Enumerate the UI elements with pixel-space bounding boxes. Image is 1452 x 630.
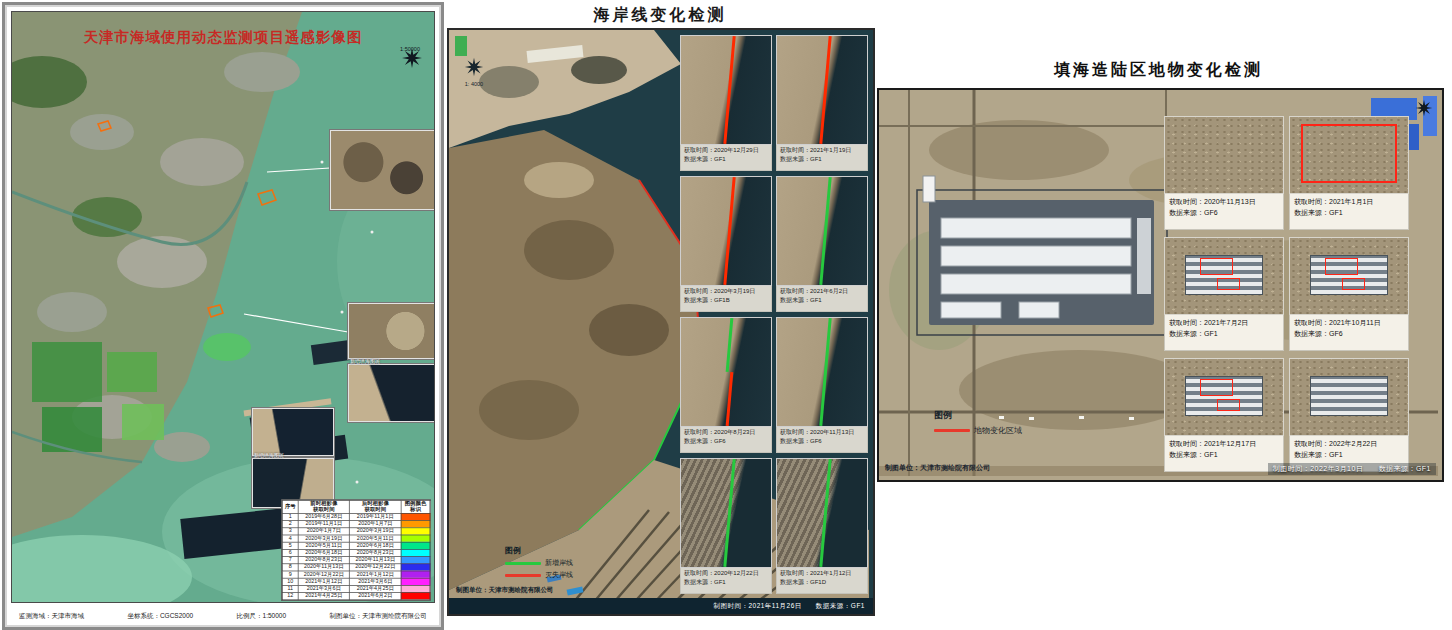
change-area-outline — [1342, 278, 1365, 291]
left-inset-b1 — [348, 303, 435, 359]
inset-satellite-image — [680, 176, 772, 286]
legend-row: 102021年1月12日2021年3月6日 — [282, 577, 430, 584]
inset-caption: 获取时间：2021年10月11日数据来源：GF6 — [1289, 315, 1409, 351]
inset-caption: 获取时间：2021年12月17日数据来源：GF1 — [1164, 436, 1284, 472]
compass-icon — [463, 56, 485, 78]
acquired-line: 获取时间：2020年3月19日 — [684, 287, 768, 296]
inset-satellite-image — [680, 35, 772, 145]
legend-cell: 2019年11月1日 — [350, 513, 401, 520]
inset-satellite-image — [776, 317, 868, 427]
acquired-line: 获取时间：2020年11月13日 — [780, 428, 864, 437]
acquired-line: 获取时间：2021年6月2日 — [780, 287, 864, 296]
change-area-outline — [1325, 258, 1358, 275]
acquired-label: 获取时间： — [1294, 440, 1329, 447]
left-inset-label-2: 新增填海图斑 — [254, 452, 284, 459]
reclamation-footer: 制图时间：2022年3月10日 数据来源：GF1 — [1268, 463, 1436, 475]
source-value: GF1 — [810, 156, 822, 162]
reclamation-inset: 获取时间：2021年1月1日数据来源：GF1 — [1289, 116, 1409, 230]
legend-cell: 2020年3月19日 — [350, 527, 401, 534]
source-line: 数据来源：GF1 — [780, 296, 864, 305]
coastline-inset-grid: 获取时间：2020年12月29日数据来源：GF1获取时间：2021年1月19日数… — [680, 35, 868, 594]
source-value: GF1 — [714, 579, 726, 585]
acquired-label: 获取时间： — [1294, 198, 1329, 205]
inset-caption: 获取时间：2021年1月19日数据来源：GF1 — [776, 145, 868, 171]
source-value: GF1B — [714, 297, 730, 303]
source-line: 数据来源：GF6 — [1169, 207, 1279, 218]
change-area-line — [934, 429, 970, 432]
reclamation-legend: 图例 地物变化区域 — [934, 409, 1022, 436]
acquired-label: 获取时间： — [780, 429, 810, 435]
coastline-inset: 获取时间：2020年11月13日数据来源：GF6 — [776, 317, 868, 453]
legend-color-swatch — [401, 570, 430, 577]
acquired-line: 获取时间：2021年10月11日 — [1294, 317, 1404, 328]
acquired-value: 2020年8月23日 — [714, 429, 755, 435]
left-compass: 1:50000 — [400, 46, 420, 53]
legend-color-swatch — [401, 549, 430, 556]
source-label: 数据来源： — [780, 156, 810, 162]
source-label: 数据来源： — [1294, 209, 1329, 216]
acquired-line: 获取时间：2020年8月23日 — [684, 428, 768, 437]
footer-scale: 比例尺：1:50000 — [237, 612, 287, 621]
legend-label: 地物变化区域 — [974, 425, 1022, 436]
legend-label: 新增岸线 — [545, 558, 573, 568]
coastline-overlay-line — [819, 459, 831, 567]
left-inset-b2 — [348, 364, 435, 422]
source-line: 数据来源：GF1 — [1169, 328, 1279, 339]
acquired-line: 获取时间：2020年11月13日 — [1169, 196, 1279, 207]
inset-satellite-image — [1289, 237, 1409, 315]
acquired-value: 2021年6月2日 — [810, 288, 848, 294]
inset-satellite-image — [680, 317, 772, 427]
left-map-title: 天津市海域使用动态监测项目遥感影像图 — [12, 28, 434, 47]
legend-cell: 12 — [282, 592, 298, 599]
source-label: 数据来源： — [1169, 209, 1204, 216]
inset-caption: 获取时间：2021年7月2日数据来源：GF1 — [1164, 315, 1284, 351]
new-coastline-line — [505, 562, 541, 565]
legend-cell: 1 — [282, 513, 298, 520]
inset-satellite-image — [680, 458, 772, 568]
source-line: 数据来源：GF1 — [1294, 207, 1404, 218]
coastline-overlay-line — [725, 372, 732, 426]
acquired-value: 2020年11月13日 — [810, 429, 854, 435]
legend-title: 图例 — [505, 545, 573, 556]
source-label: 数据来源： — [1294, 330, 1329, 337]
legend-row: 122021年4月25日2021年6月2日 — [282, 592, 430, 599]
acquired-value: 2021年10月11日 — [1329, 319, 1381, 326]
right-compass — [1414, 98, 1434, 121]
legend-cell: 7 — [282, 556, 298, 563]
source-label: 数据来源： — [1169, 451, 1204, 458]
legend-color-swatch — [401, 541, 430, 548]
acquired-line: 获取时间：2021年7月2日 — [1169, 317, 1279, 328]
inset-satellite-image — [1164, 116, 1284, 194]
inset-caption: 获取时间：2021年1月12日数据来源：GF1D — [776, 568, 868, 594]
inset-satellite-image — [1289, 116, 1409, 194]
footer-coords: 坐标系统：CGCS2000 — [127, 612, 193, 621]
legend-cell: 2019年6月28日 — [298, 513, 349, 520]
source-label: 数据来源： — [684, 579, 714, 585]
legend-cell: 4 — [282, 534, 298, 541]
coastline-panel: 海岸线变化检测 — [444, 0, 876, 630]
legend-color-swatch — [401, 527, 430, 534]
middle-compass: 1: 4000 — [463, 56, 485, 88]
legend-col-header: 序号 — [282, 500, 298, 513]
source-value: GF6 — [714, 438, 726, 444]
legend-title: 图例 — [934, 409, 1022, 422]
acquired-label: 获取时间： — [780, 570, 810, 576]
coastline-footer-text: 制图时间：2021年11月26日 数据来源：GF1 — [713, 602, 865, 611]
legend-item-new: 新增岸线 — [505, 558, 573, 568]
legend-row: 12019年6月28日2019年11月1日 — [282, 513, 430, 520]
reclamation-inset: 获取时间：2022年2月22日数据来源：GF1 — [1289, 358, 1409, 472]
middle-scale-label: 1: 4000 — [463, 82, 485, 88]
source-value: GF6 — [810, 438, 822, 444]
legend-cell: 2021年6月2日 — [350, 592, 401, 599]
acquired-value: 2021年12月17日 — [1204, 440, 1256, 447]
acquired-value: 2020年11月13日 — [1204, 198, 1256, 205]
source-value: GF1 — [1204, 451, 1218, 458]
acquired-line: 获取时间：2021年12月17日 — [1169, 438, 1279, 449]
reclamation-inset: 获取时间：2021年12月17日数据来源：GF1 — [1164, 358, 1284, 472]
legend-cell: 2020年12月22日 — [298, 570, 349, 577]
reclamation-panel: 填海造陆区地物变化检测 — [877, 60, 1452, 500]
legend-row: 82020年11月13日2020年12月22日 — [282, 563, 430, 570]
source-value: GF1 — [810, 297, 822, 303]
inset-caption: 获取时间：2020年11月13日数据来源：GF6 — [1164, 194, 1284, 230]
reclamation-inset: 获取时间：2020年11月13日数据来源：GF6 — [1164, 116, 1284, 230]
left-map-footer: 监测海域：天津市海域 坐标系统：CGCS2000 比例尺：1:50000 制图单… — [11, 608, 435, 624]
legend-cell: 8 — [282, 563, 298, 570]
source-value: GF6 — [1329, 330, 1343, 337]
inset-caption: 获取时间：2020年12月22日数据来源：GF1 — [680, 568, 772, 594]
change-legend-table: 序号前时相影像 获取时间后时相影像 获取时间图例颜色 标识12019年6月28日… — [282, 500, 430, 600]
legend-col-header: 后时相影像 获取时间 — [350, 500, 401, 513]
change-legend-panel: 序号前时相影像 获取时间后时相影像 获取时间图例颜色 标识12019年6月28日… — [281, 499, 431, 600]
legend-color-swatch — [401, 585, 430, 592]
legend-cell: 6 — [282, 549, 298, 556]
legend-cell: 2021年1月12日 — [298, 577, 349, 584]
legend-color-swatch — [401, 534, 430, 541]
reclamation-inset-grid: 获取时间：2020年11月13日数据来源：GF6获取时间：2021年1月1日数据… — [1164, 116, 1409, 472]
source-label: 数据来源： — [684, 438, 714, 444]
coastline-legend: 图例 新增岸线 灭失岸线 — [505, 545, 573, 580]
source-line: 数据来源：GF1D — [780, 578, 864, 587]
legend-label: 灭失岸线 — [545, 570, 573, 580]
coastline-footer-bar: 制图时间：2021年11月26日 数据来源：GF1 — [449, 598, 873, 614]
legend-cell: 2020年12月22日 — [350, 563, 401, 570]
coastline-map: 1: 4000 获取时间：2020年12月29日数据来源：GF1获取时间：202… — [447, 28, 875, 616]
legend-cell: 5 — [282, 541, 298, 548]
coastline-inset: 获取时间：2020年8月23日数据来源：GF6 — [680, 317, 772, 453]
coastline-overlay-line — [819, 318, 831, 426]
lost-coastline-line — [505, 574, 541, 577]
left-map-panel: 天津市海域使用动态监测项目遥感影像图 1:50000 新增填海图斑 新增填海图斑… — [2, 2, 444, 630]
left-inset-c1 — [252, 408, 334, 456]
source-value: GF6 — [1204, 209, 1218, 216]
coastline-overlay-line — [723, 177, 735, 285]
footer-credit: 制图单位：天津市测绘院有限公司 — [329, 612, 427, 621]
source-value: GF1 — [714, 156, 726, 162]
acquired-label: 获取时间： — [684, 147, 714, 153]
legend-cell: 2021年3月6日 — [298, 585, 349, 592]
legend-color-swatch — [401, 592, 430, 599]
legend-row: 32020年1月7日2020年3月19日 — [282, 527, 430, 534]
reclamation-map: 获取时间：2020年11月13日数据来源：GF6获取时间：2021年1月1日数据… — [877, 88, 1444, 482]
coastline-inset: 获取时间：2020年3月19日数据来源：GF1B — [680, 176, 772, 312]
legend-col-header: 图例颜色 标识 — [401, 500, 430, 513]
inset-caption: 获取时间：2021年1月1日数据来源：GF1 — [1289, 194, 1409, 230]
inset-caption: 获取时间：2021年6月2日数据来源：GF1 — [776, 286, 868, 312]
coastline-overlay-line — [819, 177, 831, 285]
change-area-outline — [1301, 124, 1398, 183]
source-value: GF1 — [1329, 209, 1343, 216]
source-value: GF1D — [810, 579, 826, 585]
legend-cell: 2020年8月23日 — [350, 549, 401, 556]
acquired-value: 2021年1月1日 — [1329, 198, 1373, 205]
source-value: GF1 — [1329, 451, 1343, 458]
legend-cell: 2020年1月7日 — [298, 527, 349, 534]
inset-satellite-image — [776, 176, 868, 286]
source-line: 数据来源：GF1 — [1294, 449, 1404, 460]
inset-satellite-image — [776, 458, 868, 568]
legend-color-swatch — [401, 513, 430, 520]
left-map-canvas: 天津市海域使用动态监测项目遥感影像图 1:50000 新增填海图斑 新增填海图斑… — [11, 11, 435, 603]
source-line: 数据来源：GF6 — [1294, 328, 1404, 339]
source-label: 数据来源： — [780, 297, 810, 303]
legend-color-swatch — [401, 520, 430, 527]
legend-cell: 2020年6月18日 — [298, 549, 349, 556]
source-label: 数据来源： — [780, 438, 810, 444]
coastline-title: 海岸线变化检测 — [444, 0, 876, 26]
legend-item-lost: 灭失岸线 — [505, 570, 573, 580]
left-inset-a — [330, 130, 435, 210]
acquired-line: 获取时间：2020年12月29日 — [684, 146, 768, 155]
change-area-outline — [1217, 278, 1240, 291]
legend-cell: 9 — [282, 570, 298, 577]
facility-buildings — [1310, 376, 1388, 416]
legend-cell: 10 — [282, 577, 298, 584]
source-line: 数据来源：GF1 — [780, 155, 864, 164]
acquired-line: 获取时间：2022年2月22日 — [1294, 438, 1404, 449]
inset-caption: 获取时间：2020年11月13日数据来源：GF6 — [776, 427, 868, 453]
compass-icon — [1414, 98, 1434, 118]
legend-cell: 2020年11月13日 — [350, 556, 401, 563]
acquired-value: 2022年2月22日 — [1329, 440, 1377, 447]
legend-cell: 11 — [282, 585, 298, 592]
legend-color-swatch — [401, 577, 430, 584]
legend-cell: 2020年6月18日 — [350, 541, 401, 548]
acquired-label: 获取时间： — [1169, 319, 1204, 326]
source-line: 数据来源：GF6 — [780, 437, 864, 446]
legend-cell: 2021年3月6日 — [350, 577, 401, 584]
coastline-overlay-line — [723, 36, 735, 144]
legend-cell: 2021年4月25日 — [350, 585, 401, 592]
reclamation-inset: 获取时间：2021年7月2日数据来源：GF1 — [1164, 237, 1284, 351]
legend-row: 22019年11月1日2020年1月7日 — [282, 520, 430, 527]
legend-color-swatch — [401, 563, 430, 570]
acquired-value: 2020年3月19日 — [714, 288, 755, 294]
inset-satellite-image — [776, 35, 868, 145]
footer-area: 监测海域：天津市海域 — [19, 612, 84, 621]
legend-cell: 2019年11月1日 — [298, 520, 349, 527]
source-label: 数据来源： — [1294, 451, 1329, 458]
coastline-overlay-line — [725, 318, 732, 372]
coastline-overlay-line — [723, 459, 735, 567]
coastline-inset: 获取时间：2021年6月2日数据来源：GF1 — [776, 176, 868, 312]
acquired-label: 获取时间： — [780, 147, 810, 153]
inset-caption: 获取时间：2020年12月29日数据来源：GF1 — [680, 145, 772, 171]
source-label: 数据来源： — [780, 579, 810, 585]
acquired-value: 2021年1月12日 — [810, 570, 851, 576]
legend-row: 42020年3月19日2020年5月11日 — [282, 534, 430, 541]
coastline-inset: 获取时间：2020年12月22日数据来源：GF1 — [680, 458, 772, 594]
coastline-credit: 制图单位：天津市测绘院有限公司 — [456, 586, 554, 595]
source-label: 数据来源： — [1169, 330, 1204, 337]
inset-satellite-image — [1289, 358, 1409, 436]
coastline-inset: 获取时间：2021年1月19日数据来源：GF1 — [776, 35, 868, 171]
source-label: 数据来源： — [684, 297, 714, 303]
coastline-inset: 获取时间：2021年1月12日数据来源：GF1D — [776, 458, 868, 594]
coastline-inset: 获取时间：2020年12月29日数据来源：GF1 — [680, 35, 772, 171]
legend-color-swatch — [401, 556, 430, 563]
legend-cell: 2 — [282, 520, 298, 527]
remote-sensing-montage: 天津市海域使用动态监测项目遥感影像图 1:50000 新增填海图斑 新增填海图斑… — [0, 0, 1452, 630]
acquired-line: 获取时间：2021年1月12日 — [780, 569, 864, 578]
inset-caption: 获取时间：2020年3月19日数据来源：GF1B — [680, 286, 772, 312]
acquired-line: 获取时间：2021年1月1日 — [1294, 196, 1404, 207]
source-value: GF1 — [1204, 330, 1218, 337]
acquired-label: 获取时间： — [684, 288, 714, 294]
source-line: 数据来源：GF6 — [684, 437, 768, 446]
legend-cell: 2020年3月19日 — [298, 534, 349, 541]
source-line: 数据来源：GF1 — [684, 578, 768, 587]
inset-caption: 获取时间：2020年8月23日数据来源：GF6 — [680, 427, 772, 453]
inset-satellite-image — [1164, 237, 1284, 315]
acquired-label: 获取时间： — [684, 429, 714, 435]
legend-cell: 2020年1月7日 — [350, 520, 401, 527]
reclamation-credit: 制图单位：天津市测绘院有限公司 — [885, 463, 990, 473]
change-area-outline — [1217, 399, 1240, 412]
acquired-label: 获取时间： — [1294, 319, 1329, 326]
source-label: 数据来源： — [684, 156, 714, 162]
legend-cell: 2020年5月11日 — [350, 534, 401, 541]
inset-satellite-image — [1164, 358, 1284, 436]
acquired-value: 2021年7月2日 — [1204, 319, 1248, 326]
reclamation-title: 填海造陆区地物变化检测 — [877, 60, 1440, 81]
legend-cell: 2020年11月13日 — [298, 563, 349, 570]
legend-cell: 2020年5月11日 — [298, 541, 349, 548]
change-area-outline — [1200, 379, 1233, 396]
legend-cell: 2020年8月23日 — [298, 556, 349, 563]
legend-row: 92020年12月22日2021年1月12日 — [282, 570, 430, 577]
source-line: 数据来源：GF1 — [684, 155, 768, 164]
legend-col-header: 前时相影像 获取时间 — [298, 500, 349, 513]
acquired-value: 2020年12月22日 — [714, 570, 759, 576]
acquired-value: 2021年1月19日 — [810, 147, 851, 153]
legend-item-change: 地物变化区域 — [934, 425, 1022, 436]
acquired-value: 2020年12月29日 — [714, 147, 759, 153]
acquired-label: 获取时间： — [684, 570, 714, 576]
coastline-overlay-line — [819, 36, 831, 144]
legend-row: 52020年5月11日2020年6月18日 — [282, 541, 430, 548]
reclamation-inset: 获取时间：2021年10月11日数据来源：GF6 — [1289, 237, 1409, 351]
legend-row: 112021年3月6日2021年4月25日 — [282, 585, 430, 592]
source-line: 数据来源：GF1 — [1169, 449, 1279, 460]
source-line: 数据来源：GF1B — [684, 296, 768, 305]
acquired-label: 获取时间： — [780, 288, 810, 294]
legend-cell: 2021年4月25日 — [298, 592, 349, 599]
compass-icon — [400, 46, 424, 70]
acquired-label: 获取时间： — [1169, 440, 1204, 447]
acquired-line: 获取时间：2020年12月22日 — [684, 569, 768, 578]
legend-cell: 3 — [282, 527, 298, 534]
acquired-label: 获取时间： — [1169, 198, 1204, 205]
legend-header-row: 序号前时相影像 获取时间后时相影像 获取时间图例颜色 标识 — [282, 500, 430, 513]
legend-row: 72020年8月23日2020年11月13日 — [282, 556, 430, 563]
legend-row: 62020年6月18日2020年8月23日 — [282, 549, 430, 556]
left-inset-label-1: 新增填海图斑 — [350, 358, 380, 365]
acquired-line: 获取时间：2021年1月19日 — [780, 146, 864, 155]
legend-cell: 2021年1月12日 — [350, 570, 401, 577]
change-area-outline — [1200, 258, 1233, 275]
